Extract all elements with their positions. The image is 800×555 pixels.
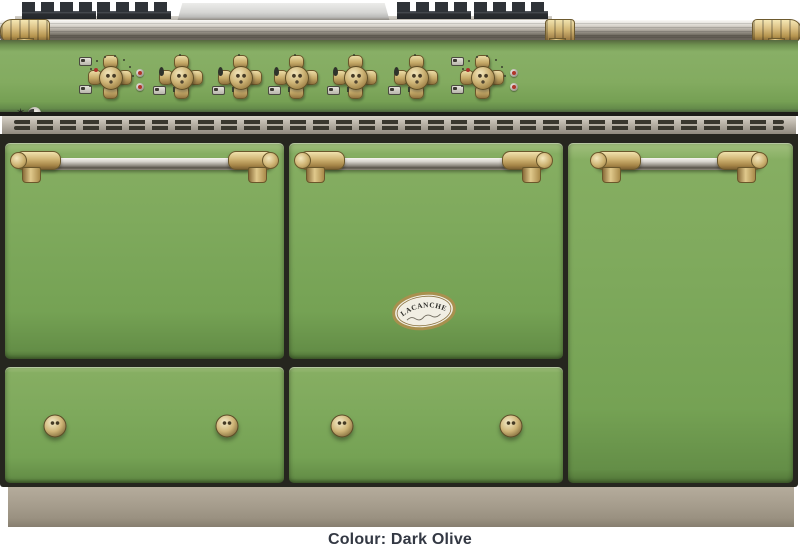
lacanche-badge: LACANCHE [390,287,458,335]
oven-thermostat-knob [460,55,504,99]
flame-icon [333,67,338,76]
oven-dial-tick [495,59,497,61]
drawer-knob [216,415,239,438]
indicator-light [136,83,144,91]
cupboard-door-right [568,143,793,483]
oven-dial-tick [104,56,106,58]
setting-tick [408,87,410,92]
handle-mount [229,151,279,183]
flame-icon [394,67,399,76]
door-handle-right [590,151,768,185]
flame-icon [274,67,279,76]
indicator-light [510,83,518,91]
oven-dial-tick [89,85,91,87]
pilot-mark [466,68,470,72]
handle-tube [37,158,252,170]
oven-dial-tick [132,75,134,77]
burner-grate-icon [397,2,471,19]
setting-tick [288,87,290,92]
oven-dial-tick [96,60,98,62]
drawer-knob [44,415,67,438]
product-image-lacanche-range: ✶ [0,0,800,555]
oven-dial-tick [461,85,463,87]
setting-tick [173,87,175,92]
handle-mount [294,151,344,183]
handle-mount [590,151,640,183]
setting-tick [179,54,181,56]
handle-mount [503,151,553,183]
burner-position-icon [212,86,225,95]
setting-tick [414,54,416,56]
oven-thermostat-knob [88,55,132,99]
burner-position-icon [153,86,166,95]
burner-grate-icon [97,2,171,19]
towel-rail [0,20,800,41]
vent-slot-row [14,120,784,124]
oven-dial-tick [486,55,488,57]
control-panel: ✶ [0,40,798,113]
oven-dial-tick [468,60,470,62]
burner-position-icon [268,86,281,95]
flame-icon [218,67,223,76]
oven-mode-icon [451,57,464,66]
plinth [8,487,794,527]
oven-dial-tick [123,59,125,61]
burner-position-icon [388,86,401,95]
oven-dial-tick [501,66,503,68]
oven-dial-tick [114,55,116,57]
oven-dial-tick [90,68,92,70]
drawer-knob [500,415,523,438]
setting-tick [353,54,355,56]
setting-tick [347,87,349,92]
oven-dial-tick [129,66,131,68]
vent-slot-row [14,126,784,130]
setting-tick [294,54,296,56]
pilot-mark [94,68,98,72]
burner-grate-icon [474,2,548,19]
burner-grate-icon [22,2,96,19]
flame-icon [159,67,164,76]
handle-tube [321,158,526,170]
door-handle-left [10,151,279,185]
colour-caption: Colour: Dark Olive [0,531,800,549]
vent-grille [2,116,796,134]
setting-tick [238,54,240,56]
oven-mode-icon [79,57,92,66]
indicator-light [136,69,144,77]
indicator-light [510,69,518,77]
handle-mount [718,151,768,183]
burner-position-icon [327,86,340,95]
door-handle-middle [294,151,553,185]
oven-dial-tick [462,68,464,70]
setting-tick [232,87,234,92]
oven-dial-tick [476,56,478,58]
drawer-knob [331,415,354,438]
handle-mount [10,151,60,183]
oven-dial-tick [504,75,506,77]
